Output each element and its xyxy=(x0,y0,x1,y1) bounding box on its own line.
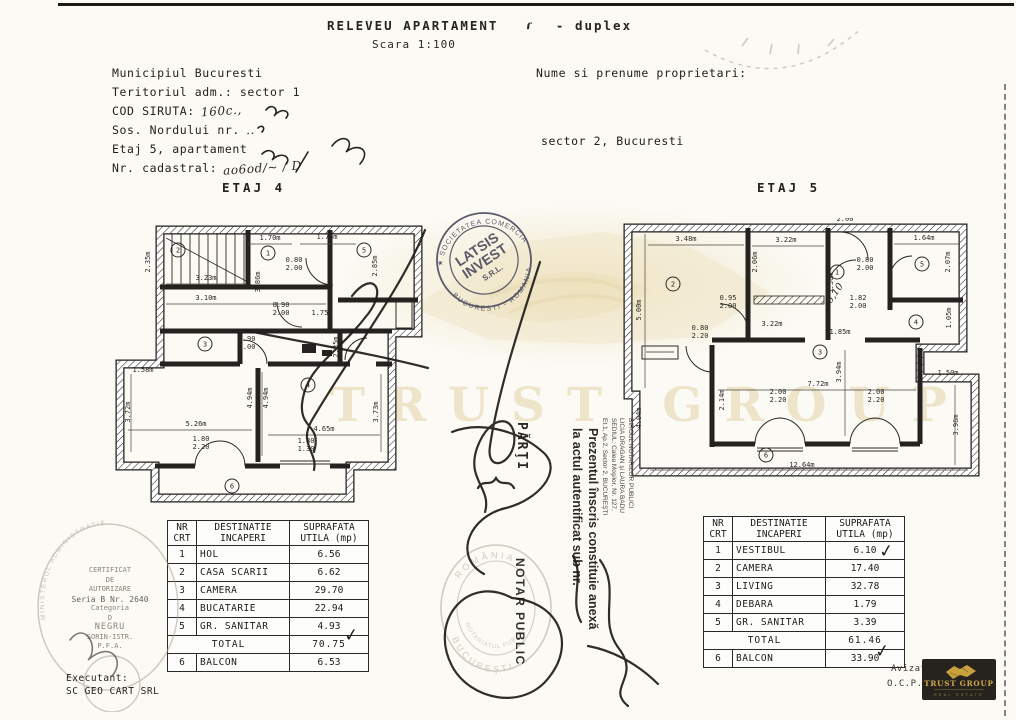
dimension-label: 0.95 xyxy=(720,294,737,302)
table-cell: HOL xyxy=(197,546,290,564)
table-cell: 3 xyxy=(704,578,733,596)
dimension-label: 1.05m xyxy=(945,307,953,328)
dimension-label: 2.00 xyxy=(286,264,303,272)
office-line: BIROUL NOTARILOR PUBLICI xyxy=(626,418,635,515)
handwritten-mark: ɾ xyxy=(526,18,534,33)
scanned-document-page: { "header": { "title": "RELEVEU APARTAME… xyxy=(0,0,1016,720)
table-row: 3CAMERA29.70 xyxy=(168,582,369,600)
dimension-label: 2.00 xyxy=(868,388,885,396)
logo-name: TRUST GROUP xyxy=(924,679,993,688)
dimension-label: 4.65m xyxy=(313,425,334,433)
dimension-label: 5.00m xyxy=(635,299,643,320)
dimension-label: 2.06m xyxy=(751,251,759,272)
dimension-label: 3.48m xyxy=(675,235,696,243)
th-nr: NRCRT xyxy=(704,517,733,542)
parti-vertical-text: PĂRŢI xyxy=(514,422,529,471)
executant-name: SC GEO CART SRL xyxy=(66,685,159,698)
table-row: 3LIVING32.78 xyxy=(704,578,905,596)
dimension-label: 3.73m xyxy=(372,401,380,422)
page-title: RELEVEU APARTAMENT xyxy=(327,18,498,33)
table-cell: 4 xyxy=(704,596,733,614)
dimension-label: 0.80 xyxy=(857,256,874,264)
dimension-label: 0.80 xyxy=(692,324,709,332)
table-cell: CAMERA xyxy=(733,560,826,578)
dimension-label: 2.00 xyxy=(720,302,737,310)
certificate-stamp-lines: CERTIFICATDEAUTORIZARESeria B Nr. 2640Ca… xyxy=(44,566,176,652)
dimension-label: 2.20 xyxy=(770,396,787,404)
dimension-label: 0.90 xyxy=(239,335,256,343)
dimension-label: 1.80 xyxy=(298,437,315,445)
document-title-row: RELEVEU APARTAMENT ɾ - duplex xyxy=(327,18,632,33)
notar-public-vertical-text: NOTAR PUBLIC xyxy=(513,558,527,666)
table-cell: GR. SANITAR xyxy=(197,618,290,636)
dimension-label: 2.20 xyxy=(868,396,885,404)
table-cell: 6.56 xyxy=(290,546,369,564)
scale-label: Scara 1:100 xyxy=(372,38,456,51)
title-suffix: - duplex xyxy=(556,18,632,33)
room-number: 3 xyxy=(818,349,822,357)
room-number: 6 xyxy=(764,452,768,460)
dimension-label: 1.50m xyxy=(937,369,958,377)
dimension-label: 7.72m xyxy=(807,380,828,388)
table-row-total: TOTAL 70.75 xyxy=(168,636,369,654)
table-cell: 22.94 xyxy=(290,600,369,618)
dimension-label: 2.00 xyxy=(770,388,787,396)
floor-plan-etaj4: 1.70m1.76m2.35m3.23m3.10m3.86m0.802.002.… xyxy=(112,218,434,512)
dimension-label: 2.35m xyxy=(144,251,152,272)
owner-city: sector 2, Bucuresti xyxy=(541,134,684,148)
table-cell: 29.70 xyxy=(290,582,369,600)
dimension-label: 3.86m xyxy=(254,271,262,292)
cert-line: NEGRU xyxy=(44,623,176,633)
hline: Nr. cadastral:ao6od/~ / D xyxy=(112,159,302,178)
dimension-label: 1.85m xyxy=(829,328,850,336)
table-cell: 32.78 xyxy=(826,578,905,596)
dimension-label: 1.64m xyxy=(913,234,934,242)
hline: Municipiul Bucuresti xyxy=(112,64,302,83)
dimension-label: 2.00 xyxy=(837,218,854,223)
area-table-etaj4: NRCRT DESTINATIEINCAPERI SUPRAFATAUTILA … xyxy=(167,520,369,672)
dimension-label: 3.96m xyxy=(952,414,960,435)
room-number: 6 xyxy=(230,483,234,491)
handshake-icon xyxy=(946,665,976,679)
dimension-label: 1.76m xyxy=(316,233,337,241)
table-cell: BUCATARIE xyxy=(197,600,290,618)
table-cell: 2 xyxy=(704,560,733,578)
table-row: 2CASA SCARII6.62 xyxy=(168,564,369,582)
dimension-label: 1.75m xyxy=(311,309,332,317)
table-cell: BALCON xyxy=(197,654,290,672)
table-cell: 1.79 xyxy=(826,596,905,614)
office-line: SEDIUL: Calea Moşilor, Nr. 127, xyxy=(609,418,618,515)
room-number: 3 xyxy=(203,341,207,349)
room-number: 4 xyxy=(914,319,918,327)
table-cell: LIVING xyxy=(733,578,826,596)
th-dest: DESTINATIEINCAPERI xyxy=(733,517,826,542)
table-row: 2CAMERA17.40 xyxy=(704,560,905,578)
dimension-label: 3.22m xyxy=(775,236,796,244)
hline: COD SIRUTA:160c., xyxy=(112,102,302,121)
faint-stamp-arc xyxy=(690,8,880,83)
annex-line1: Prezentul înscris constituie anexă xyxy=(585,428,601,629)
cert-line: SORIN-ISTR. xyxy=(44,633,176,643)
executant-block: Executant: SC GEO CART SRL xyxy=(66,672,159,698)
total-value: 61.46 xyxy=(826,632,905,650)
table-cell: GR. SANITAR xyxy=(733,614,826,632)
cert-line: DE xyxy=(44,576,176,586)
room-number: 1 xyxy=(835,269,839,277)
room-number: 2 xyxy=(671,281,675,289)
table-cell: BALCON xyxy=(733,650,826,668)
cert-line: Seria B Nr. 2640 xyxy=(44,595,176,605)
dimension-label: 4.94m xyxy=(246,387,254,408)
dimension-label: 3.72m xyxy=(124,401,132,422)
cert-line: P.F.A. xyxy=(44,642,176,652)
table-cell: 5 xyxy=(704,614,733,632)
dimension-label: 2.14m xyxy=(718,389,726,410)
table-cell: 6.53 xyxy=(290,654,369,672)
executant-label: Executant: xyxy=(66,672,159,685)
dimension-label: 12.64m xyxy=(789,461,814,469)
dimension-label: 1.80 xyxy=(193,435,210,443)
property-id-block: Municipiul BucurestiTeritoriul adm.: sec… xyxy=(112,64,302,178)
table-cell: DEBARA xyxy=(733,596,826,614)
dimension-label: 4.04m xyxy=(635,407,643,428)
logo-subtitle: REAL ESTATE xyxy=(934,693,984,697)
dimension-label: 3.10m xyxy=(195,294,216,302)
hline: Etaj 5, apartament xyxy=(112,140,302,159)
room-number: 1 xyxy=(266,250,270,258)
dimension-label: 0.90 xyxy=(273,301,290,309)
dimension-label: 1.70m xyxy=(259,234,280,242)
hline: Teritoriul adm.: sector 1 xyxy=(112,83,302,102)
th-supr: SUPRAFATAUTILA (mp) xyxy=(826,517,905,542)
notary-office-stamp-text: BIROUL NOTARILOR PUBLICILICIA DRAGAN şi … xyxy=(600,418,634,515)
dimension-label: 3.22m xyxy=(761,320,782,328)
dimension-label: 1.58m xyxy=(132,366,153,374)
notary-round-stamp: ROMÂNIA BUCUREŞTI NOTARIATUL PUBLIC xyxy=(430,532,565,684)
table-cell: CAMERA xyxy=(197,582,290,600)
dimension-label: 2.00 xyxy=(857,264,874,272)
table-cell: VESTIBUL xyxy=(733,542,826,560)
room-number: 5 xyxy=(362,247,366,255)
dimension-label: 2.20 xyxy=(193,443,210,451)
floor-label-etaj5: ETAJ 5 xyxy=(757,180,820,195)
hline: Sos. Nordului nr... xyxy=(112,121,302,140)
dimension-label: 3.23m xyxy=(195,274,216,282)
floor-label-etaj4: ETAJ 4 xyxy=(222,180,285,195)
table-row-balcony: 6 BALCON 6.53 xyxy=(168,654,369,672)
th-supr: SUPRAFATAUTILA (mp) xyxy=(290,521,369,546)
dimension-label: 4.94m xyxy=(262,387,270,408)
table-cell: 6 xyxy=(704,650,733,668)
trust-group-logo: TRUST GROUP REAL ESTATE xyxy=(922,659,996,700)
floor-plan-etaj5: 0.922.003.48m3.22m1.64m5.00m2.06m3.30m2.… xyxy=(620,218,1016,512)
table-row: 1HOL6.56 xyxy=(168,546,369,564)
office-line: Et.1, Ap.2, Sector 2, BUCUREŞTI xyxy=(600,418,609,515)
table-cell: 1 xyxy=(704,542,733,560)
dimension-label: 2.07m xyxy=(944,251,952,272)
dimension-label: 2.00 xyxy=(850,302,867,310)
table-cell: 6.62 xyxy=(290,564,369,582)
latsis-invest-stamp: ★ SOCIETATEA COMERCIALA ★ BUCURESTI - RO… xyxy=(408,192,560,334)
table-row: 5GR. SANITAR3.39 xyxy=(704,614,905,632)
dimension-label: 1.82 xyxy=(850,294,867,302)
cert-line: AUTORIZARE xyxy=(44,585,176,595)
dimension-label: 1.30 xyxy=(298,445,315,453)
dimension-label: 3.94m xyxy=(835,361,843,382)
office-line: LICIA DRAGAN şi LAURA BADU xyxy=(617,418,626,515)
dimension-label: 2.00 xyxy=(239,343,256,351)
fixtures-etaj5 xyxy=(642,346,678,359)
dimension-label: 2.00 xyxy=(273,309,290,317)
table-row: 4DEBARA1.79 xyxy=(704,596,905,614)
table-cell: CASA SCARII xyxy=(197,564,290,582)
notary-annex-note: Prezentul înscris constituie anexă la ac… xyxy=(569,428,601,629)
dimension-label: 2.85m xyxy=(371,255,379,276)
notary-arc-top: ROMÂNIA xyxy=(453,550,517,580)
room-number: 5 xyxy=(920,261,924,269)
cert-line: Categoria xyxy=(44,604,176,614)
dimension-label: 0.80 xyxy=(286,256,303,264)
table-cell: 17.40 xyxy=(826,560,905,578)
table-row: 4BUCATARIE22.94 xyxy=(168,600,369,618)
dimension-label: 2.20 xyxy=(692,332,709,340)
room-number: 2 xyxy=(176,247,180,255)
annex-line2: la actul autentificat sub nr. xyxy=(569,428,585,629)
dimension-label: 5.26m xyxy=(185,420,206,428)
cert-line: CERTIFICAT xyxy=(44,566,176,576)
total-label: TOTAL xyxy=(704,632,826,650)
svg-text:ROMÂNIA: ROMÂNIA xyxy=(453,550,517,580)
dimension-label: 2.35m xyxy=(332,336,340,357)
table-row-balcony: 6 BALCON 33.90 xyxy=(704,650,905,668)
table-cell: 3.39 xyxy=(826,614,905,632)
table-row: 5GR. SANITAR4.93 xyxy=(168,618,369,636)
th-dest: DESTINATIEINCAPERI xyxy=(197,521,290,546)
table-row: 1VESTIBUL6.10 xyxy=(704,542,905,560)
scan-top-edge-line xyxy=(58,3,1014,6)
trust-group-logo-art: TRUST GROUP REAL ESTATE xyxy=(922,659,996,700)
room-number: 4 xyxy=(306,382,310,390)
